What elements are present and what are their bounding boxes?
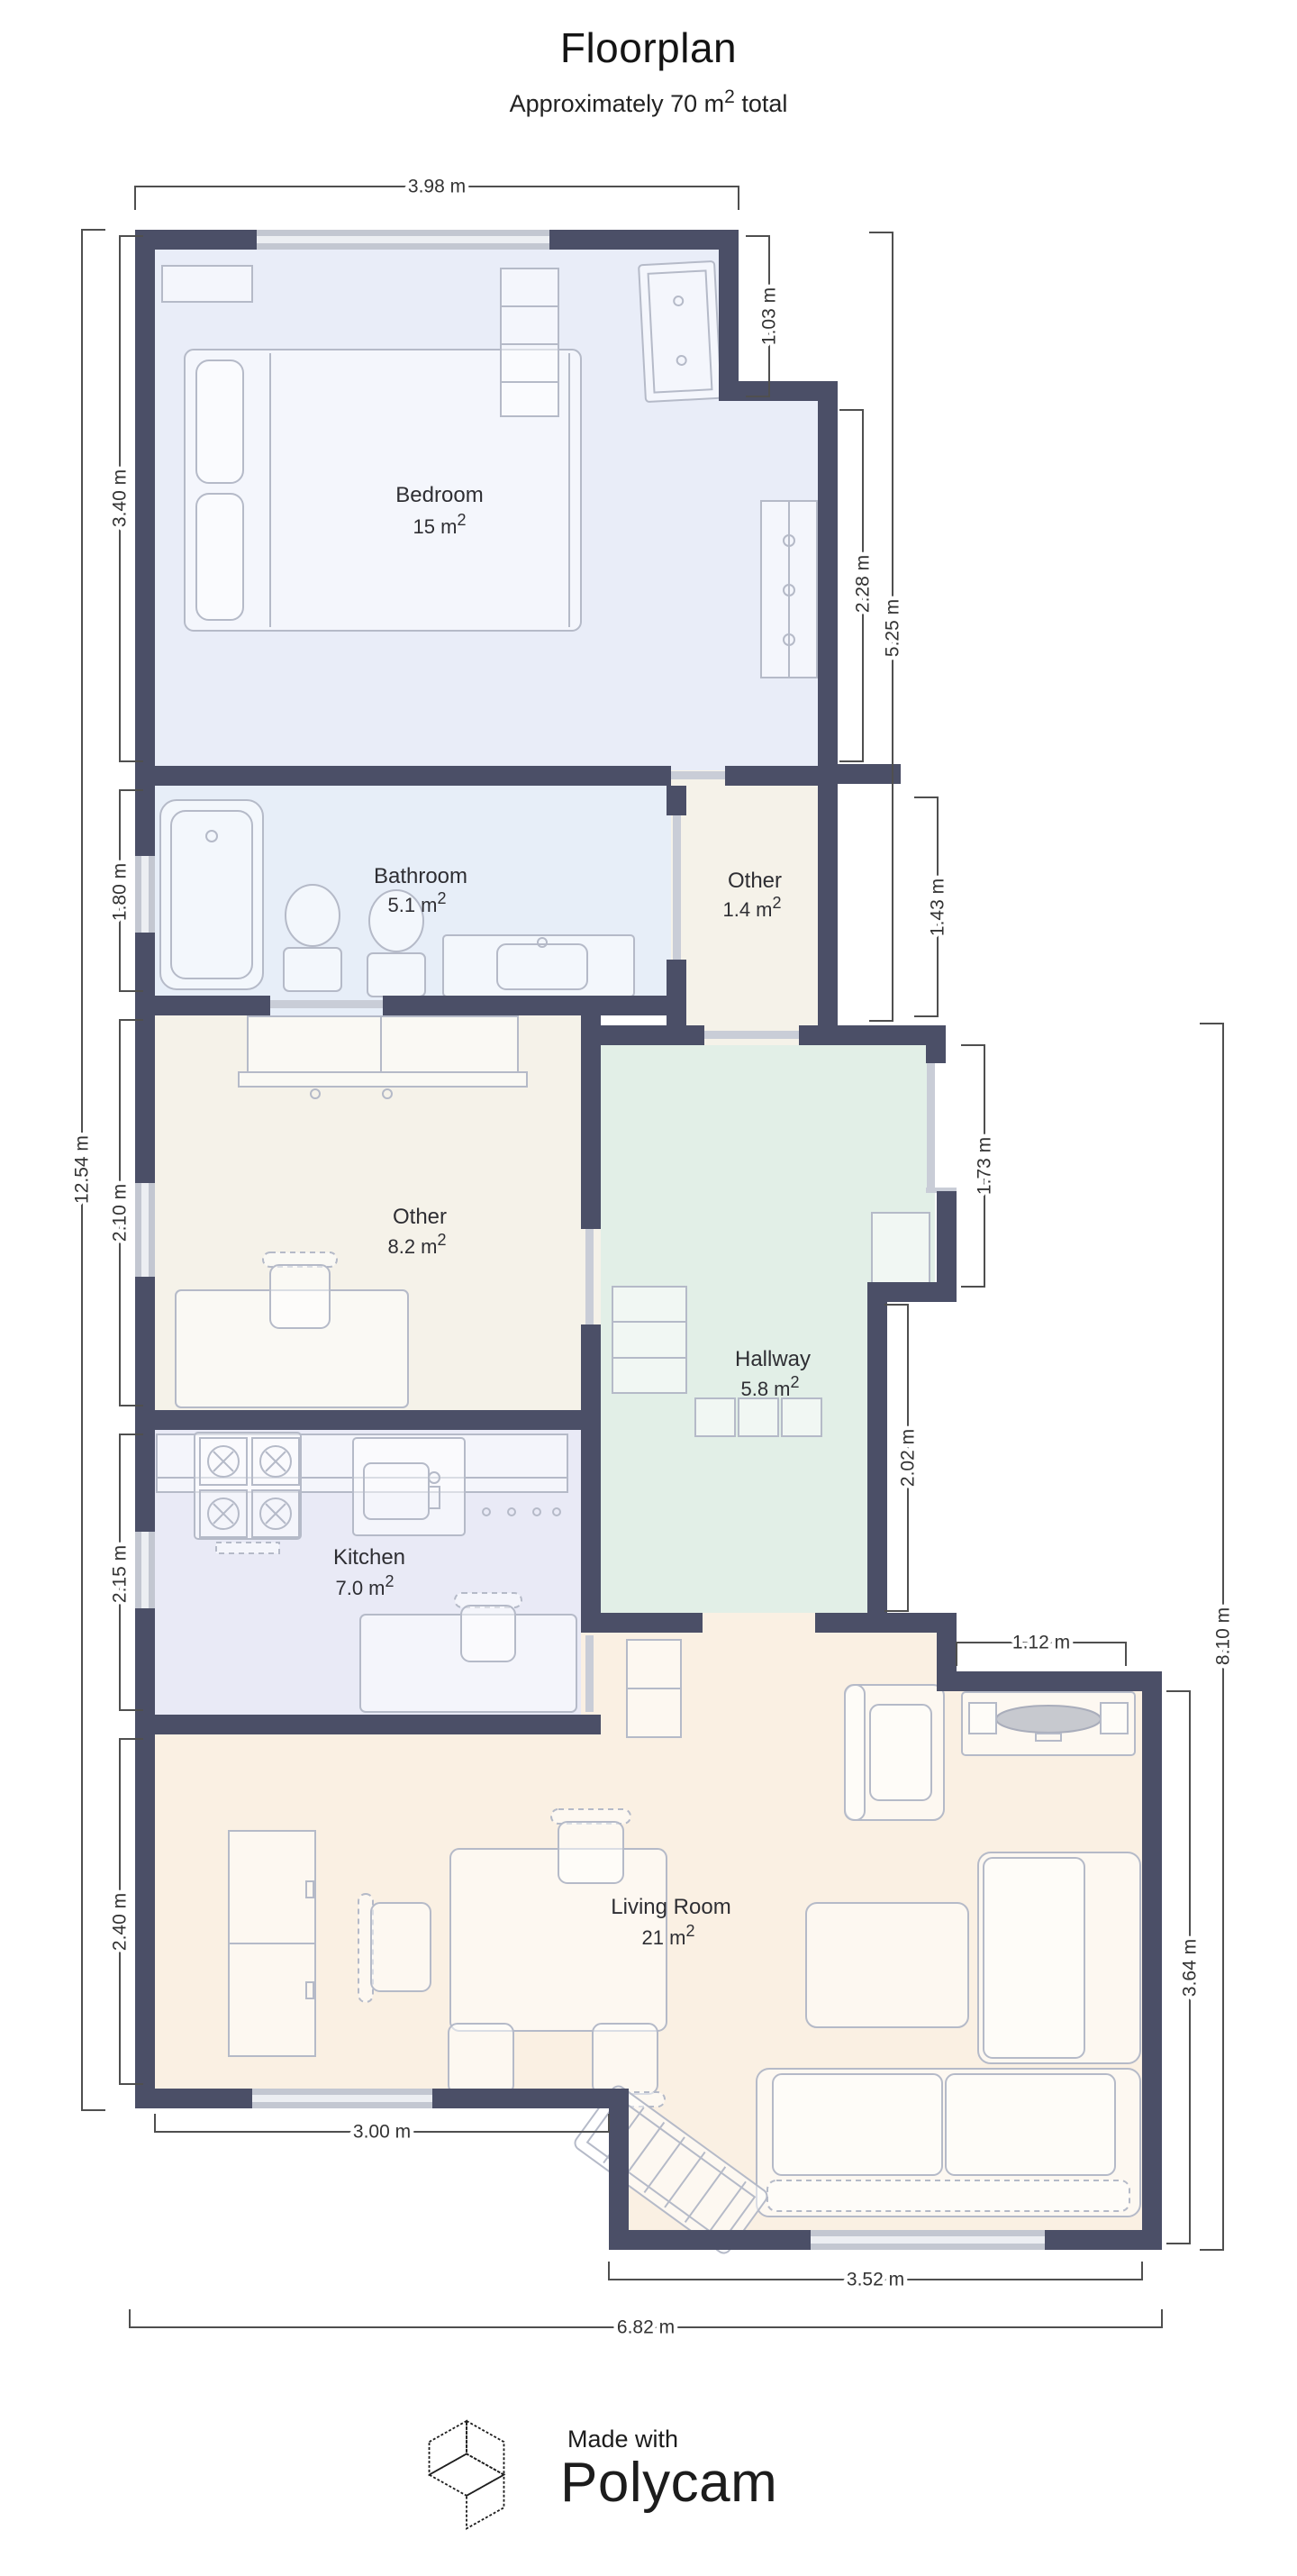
armchair (845, 1685, 944, 1820)
dimension-label: 3.52 m (847, 2270, 904, 2290)
dimension-living-left-width: 3.00 m (155, 2114, 609, 2143)
door (585, 1229, 594, 1324)
entry-door (927, 1054, 935, 1189)
coffee-table (806, 1903, 968, 2027)
window (811, 2230, 1045, 2250)
room-name: Living Room (611, 1895, 730, 1919)
wall (867, 1282, 957, 1302)
bathtub (160, 800, 263, 989)
wall (725, 766, 838, 786)
dining-chair-left (358, 1894, 431, 2002)
tv-console (962, 1692, 1135, 1755)
dimension-label: 3.98 m (408, 177, 466, 197)
shoe-boxes (695, 1398, 821, 1436)
floorplan-page: Floorplan Approximately 70 m2 total (0, 0, 1297, 2576)
door (704, 1031, 799, 1039)
dimension-entry-door: 1.73 m (961, 1045, 995, 1287)
dimension-label: 1.73 m (975, 1137, 995, 1195)
wall (815, 1613, 957, 1633)
dimension-total-left: 12.54 m (72, 230, 106, 2110)
stove (195, 1433, 301, 1553)
sink-vanity (443, 935, 634, 997)
wall (135, 766, 671, 786)
dimension-label: 3.64 m (1180, 1939, 1201, 1997)
dresser (639, 261, 721, 402)
kitchen-chair (455, 1593, 522, 1661)
window (135, 1532, 155, 1608)
room-name: Other (728, 869, 782, 893)
window (135, 856, 155, 933)
dimension-label: 2.15 m (110, 1545, 131, 1603)
dimension-label: 3.40 m (110, 469, 131, 527)
wall (601, 1613, 703, 1633)
dimension-label: 1.43 m (928, 878, 948, 936)
room-name: Bathroom (374, 864, 467, 888)
fridge-cabinet (627, 1640, 681, 1737)
wall (719, 230, 739, 401)
wall (135, 1715, 601, 1734)
tall-cabinet (229, 1831, 315, 2056)
dimension-hall-lower: 2.02 m (884, 1305, 919, 1611)
wall (581, 1015, 601, 1229)
dimension-label: 6.82 m (617, 2317, 675, 2338)
wall (135, 996, 270, 1015)
wall-cabinets (239, 1016, 527, 1098)
kitchen-sink (353, 1438, 465, 1535)
closet (501, 269, 558, 416)
dimension-label: 2.02 m (898, 1429, 919, 1487)
window (135, 1183, 155, 1277)
dimension-living-right-height: 3.64 m (1166, 1691, 1201, 2244)
dimension-label: 1.03 m (759, 287, 780, 345)
room-name: Kitchen (333, 1545, 405, 1570)
dimension-right-upper: 5.25 m (869, 232, 903, 1021)
dimension-label: 5.25 m (883, 599, 903, 657)
wall (799, 1025, 946, 1045)
dimension-label: 1.80 m (110, 863, 131, 921)
window (252, 2089, 432, 2108)
window (257, 230, 549, 250)
wall (601, 1025, 704, 1045)
wall (838, 764, 901, 784)
entry-cabinet (872, 1213, 930, 1288)
wall (135, 230, 155, 2108)
dimension-label: 2.28 m (853, 555, 874, 613)
wall (609, 2089, 629, 2250)
dimension-label: 12.54 m (72, 1135, 93, 1204)
dimension-entry-recess: 1.43 m (914, 797, 948, 1016)
room-name: Other (393, 1205, 447, 1229)
wall (383, 996, 686, 1015)
dimension-bottom-total: 6.82 m (130, 2309, 1162, 2338)
room-name: Hallway (735, 1347, 811, 1371)
wall (867, 1302, 887, 1613)
wall (1142, 1671, 1162, 2250)
radiator-shelf (162, 266, 252, 302)
dimension-label: 2.10 m (110, 1184, 131, 1242)
door (270, 1000, 383, 1008)
floorplan-drawing: 3.98 m 12.54 m 3.40 m 1.80 m 2.10 m 2.15… (0, 0, 1297, 2576)
room-name: Bedroom (395, 483, 483, 507)
dimension-label: 8.10 m (1213, 1607, 1234, 1665)
dimension-right-total: 8.10 m (1200, 1024, 1234, 2250)
dining-chair-top (551, 1809, 630, 1883)
polycam-logo-icon (413, 2408, 521, 2530)
dimension-top-width: 3.98 m (135, 177, 739, 211)
door (671, 771, 725, 779)
dimension-notch-height: 1.03 m (746, 236, 780, 396)
wall (135, 1410, 601, 1430)
door (585, 1635, 594, 1712)
polycam-wordmark: Polycam (560, 2451, 777, 2515)
wall (581, 1324, 601, 1633)
hall-shelf (612, 1287, 686, 1393)
wall (667, 786, 686, 815)
office-chair (263, 1252, 337, 1328)
door (673, 815, 681, 960)
wardrobe (761, 501, 817, 678)
wall (818, 381, 838, 1045)
dimension-wardrobe-nook: 2.28 m (839, 410, 874, 761)
dimension-living-right-width: 3.52 m (609, 2262, 1142, 2290)
dimension-label: 3.00 m (353, 2122, 411, 2143)
dimension-label: 1.12 m (1012, 1633, 1070, 1653)
wall (937, 1671, 1142, 1691)
dimension-label: 2.40 m (110, 1893, 131, 1951)
dimension-living-step: 1.12 m (957, 1633, 1126, 1667)
wall (926, 1045, 946, 1063)
made-with-text: Made with (567, 2426, 678, 2453)
